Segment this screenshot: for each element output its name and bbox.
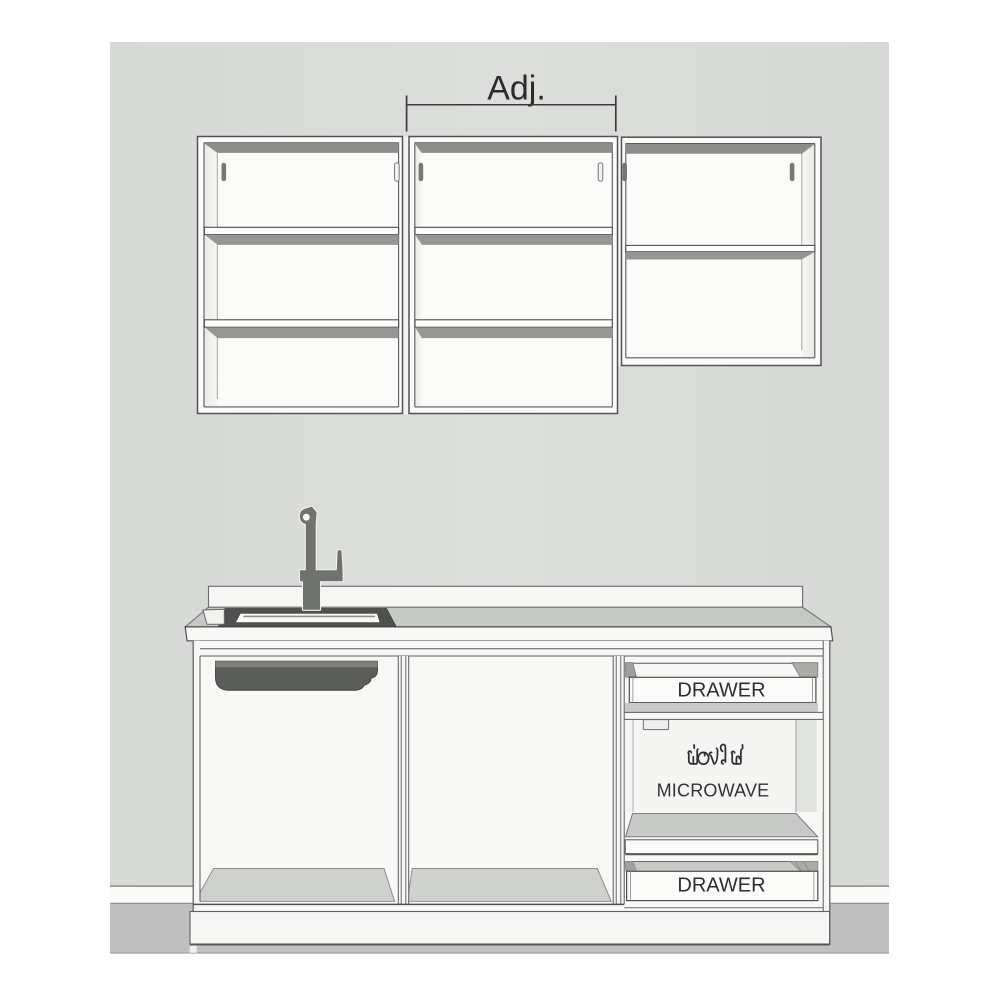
svg-text:Adj.: Adj. bbox=[487, 70, 546, 108]
svg-text:DRAWER: DRAWER bbox=[677, 875, 765, 897]
svg-text:DRAWER: DRAWER bbox=[677, 680, 765, 702]
svg-text:MICROWAVE: MICROWAVE bbox=[657, 781, 770, 801]
